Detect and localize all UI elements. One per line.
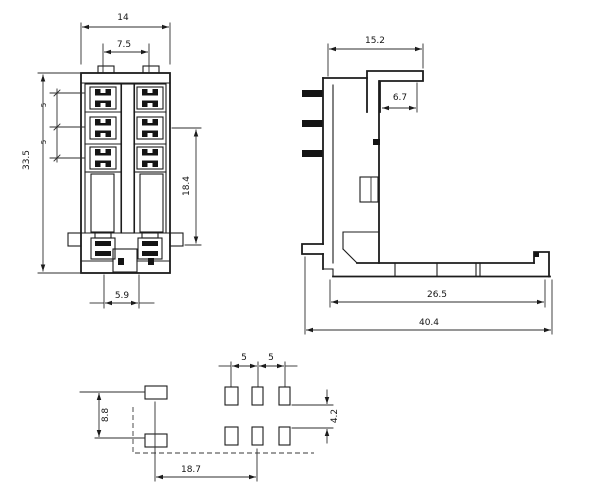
technical-drawing: 14 7.5 33.5 5 5 18.4 5.9 xyxy=(0,0,600,488)
relay-pin xyxy=(302,120,323,127)
dim-front-overall-width: 14 xyxy=(117,13,129,23)
dim-front-row-pitch-b: 5 xyxy=(40,140,48,144)
contact-pad xyxy=(225,427,238,445)
side-end-hook-notch xyxy=(534,252,539,257)
terminal-screw xyxy=(137,87,163,109)
bottom-view xyxy=(133,386,314,453)
side-heel xyxy=(343,232,379,249)
front-top-tab-left xyxy=(98,66,114,73)
side-view xyxy=(302,71,550,277)
dim-front-coil-offset: 5.9 xyxy=(115,291,130,301)
front-center-channel xyxy=(122,84,135,233)
terminal-screw xyxy=(137,147,163,169)
dim-bottom-pin-pitch-a: 5 xyxy=(241,353,247,363)
terminal-screw xyxy=(137,117,163,139)
front-dimensions: 14 7.5 33.5 5 5 18.4 5.9 xyxy=(22,13,201,308)
front-center-tab xyxy=(113,249,137,272)
front-bottom-notch xyxy=(148,258,154,265)
dim-front-terminal-pitch: 7.5 xyxy=(117,40,131,50)
front-view xyxy=(68,66,183,273)
coil-terminal-screw xyxy=(91,233,115,259)
side-latch-notch xyxy=(373,139,380,145)
relay-pin xyxy=(302,150,323,157)
dim-side-overall-length: 40.4 xyxy=(419,318,439,328)
contact-pad xyxy=(279,427,290,445)
side-base-step xyxy=(323,269,333,277)
front-window-right xyxy=(140,174,163,232)
dim-front-row-pitch-a: 5 xyxy=(40,103,48,107)
dim-bottom-row-gap: 4.2 xyxy=(330,409,340,423)
dim-front-terminal-span: 18.4 xyxy=(182,176,192,196)
contact-pad xyxy=(279,387,290,405)
dim-side-hook-depth: 6.7 xyxy=(393,93,407,103)
side-foot xyxy=(302,244,323,254)
side-clip xyxy=(360,177,378,202)
coil-terminal-screw xyxy=(138,233,162,259)
front-bottom-notch xyxy=(118,258,124,265)
dim-front-overall-height: 33.5 xyxy=(22,150,32,170)
side-dimensions: 15.2 6.7 26.5 40.4 xyxy=(305,36,552,334)
dim-side-top-width: 15.2 xyxy=(365,36,385,46)
side-top-hook xyxy=(367,71,423,112)
front-window-left xyxy=(91,174,114,232)
side-heel-chamfer xyxy=(343,249,357,263)
dim-side-base-length: 26.5 xyxy=(427,290,447,300)
coil-pad xyxy=(145,386,167,399)
terminal-screw xyxy=(90,147,116,169)
dim-bottom-coil-to-contact: 18.7 xyxy=(181,465,201,475)
front-flange-right xyxy=(170,233,183,246)
dim-bottom-coil-pin-span: 8.8 xyxy=(101,408,111,423)
front-top-tab-right xyxy=(143,66,159,73)
dim-bottom-pin-pitch-b: 5 xyxy=(268,353,274,363)
contact-pad xyxy=(252,387,263,405)
coil-pad xyxy=(145,434,167,447)
contact-pad xyxy=(225,387,238,405)
relay-pin xyxy=(302,90,323,97)
bottom-dimensions: 5 5 8.8 4.2 18.7 xyxy=(80,353,340,481)
terminal-screw xyxy=(90,117,116,139)
bottom-outline-dashed xyxy=(133,407,314,453)
front-flange-left xyxy=(68,233,81,246)
terminal-screw xyxy=(90,87,116,109)
contact-pad xyxy=(252,427,263,445)
